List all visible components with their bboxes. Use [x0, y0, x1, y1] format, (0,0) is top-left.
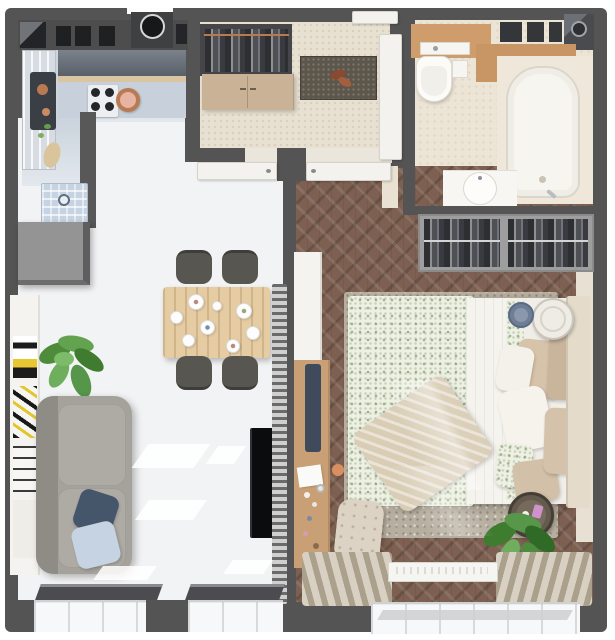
cosmetic-item-icon [307, 516, 312, 521]
floor-basket-icon [332, 464, 344, 476]
nightstand-tray-icon [540, 306, 566, 332]
cosmetic-item-icon [303, 531, 308, 536]
basket-inner-icon [514, 308, 528, 322]
closet-rail-icon [508, 240, 588, 242]
cosmetic-item-icon [304, 492, 310, 498]
bedroom [0, 0, 615, 640]
closet-rail-icon [424, 240, 500, 242]
closet-clothes [508, 219, 588, 267]
sunbeam-overlay [352, 466, 532, 536]
cosmetic-item-icon [312, 502, 317, 507]
floor-plan-render [0, 0, 615, 640]
closet-clothes [424, 219, 500, 267]
hand-mirror-icon [316, 484, 325, 493]
glazing-sill-bar [377, 610, 573, 620]
curtain [302, 552, 392, 606]
white-wardrobe [294, 252, 322, 362]
cosmetic-item-icon [313, 543, 319, 549]
navy-bench [305, 364, 321, 452]
curtain [496, 552, 592, 606]
sill-vent-icon [396, 567, 488, 574]
